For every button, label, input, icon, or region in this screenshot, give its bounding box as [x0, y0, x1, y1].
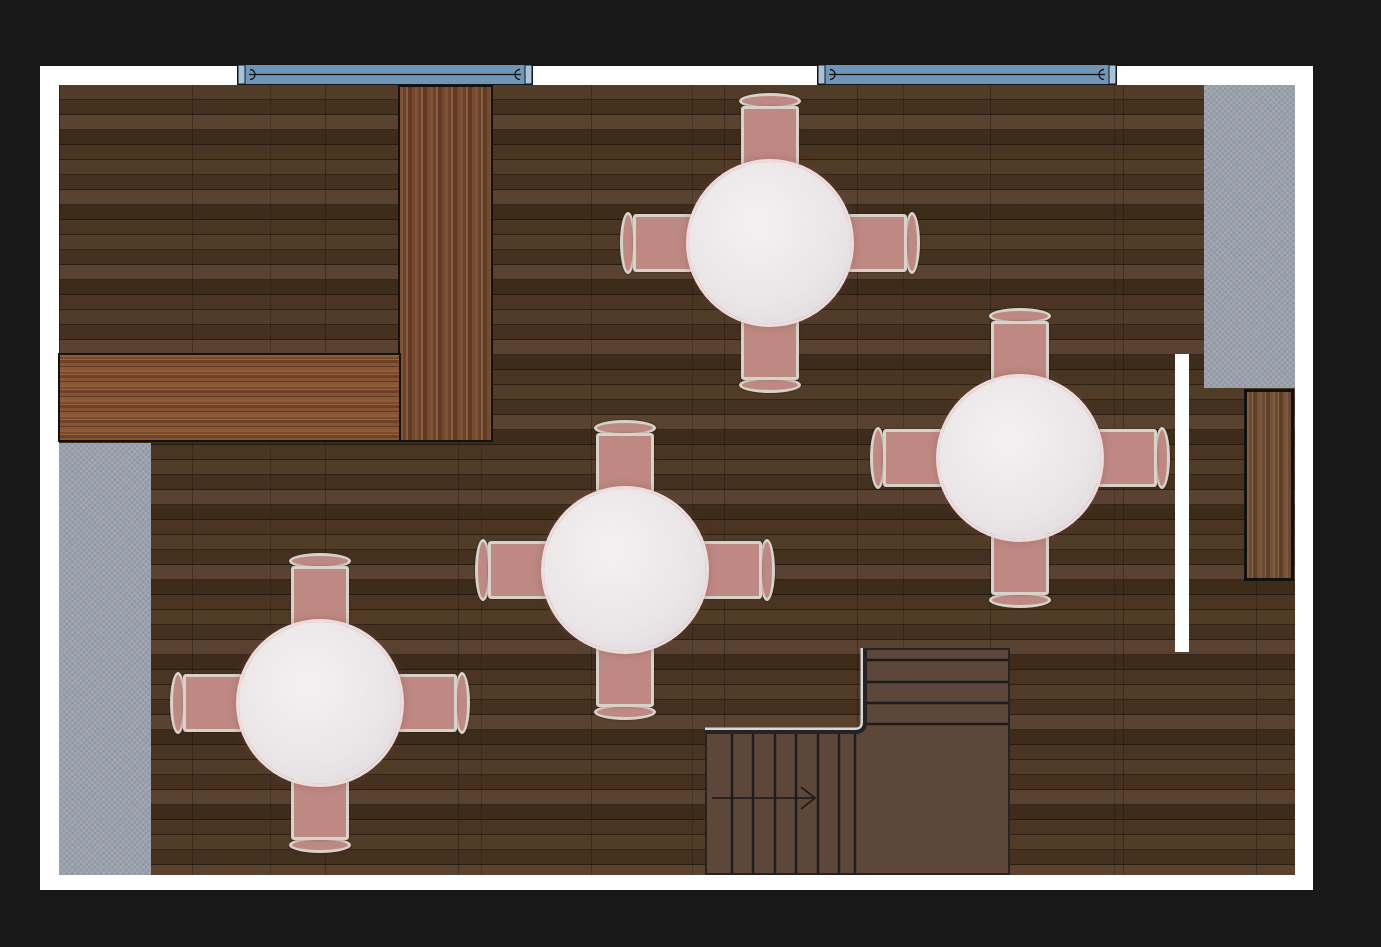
- dining-set-bottom-left: [170, 553, 470, 853]
- window-icon: [237, 64, 533, 85]
- chair-west[interactable]: [870, 425, 946, 491]
- chair-seat: [883, 429, 943, 487]
- round-table[interactable]: [689, 162, 851, 324]
- bar-counter-vertical[interactable]: [398, 85, 493, 442]
- window-top-left[interactable]: [237, 64, 533, 85]
- round-table[interactable]: [239, 622, 401, 784]
- chair-west[interactable]: [475, 537, 551, 603]
- dining-set-center: [475, 420, 775, 720]
- bar-counter-horizontal[interactable]: [58, 353, 401, 442]
- chair-seat: [183, 674, 243, 732]
- window-top-right[interactable]: [817, 64, 1117, 85]
- chair-west[interactable]: [620, 210, 696, 276]
- cabinet[interactable]: [1244, 389, 1294, 581]
- window-icon: [817, 64, 1117, 85]
- door-opening[interactable]: [1175, 354, 1189, 652]
- dining-set-right: [870, 308, 1170, 608]
- chair-west[interactable]: [170, 670, 246, 736]
- chair-seat: [633, 214, 693, 272]
- floor-plan-canvas: [0, 0, 1381, 947]
- round-table[interactable]: [939, 377, 1101, 539]
- gray-strip-left[interactable]: [59, 443, 151, 875]
- gray-strip-right[interactable]: [1204, 85, 1295, 388]
- round-table[interactable]: [544, 489, 706, 651]
- chair-seat: [488, 541, 548, 599]
